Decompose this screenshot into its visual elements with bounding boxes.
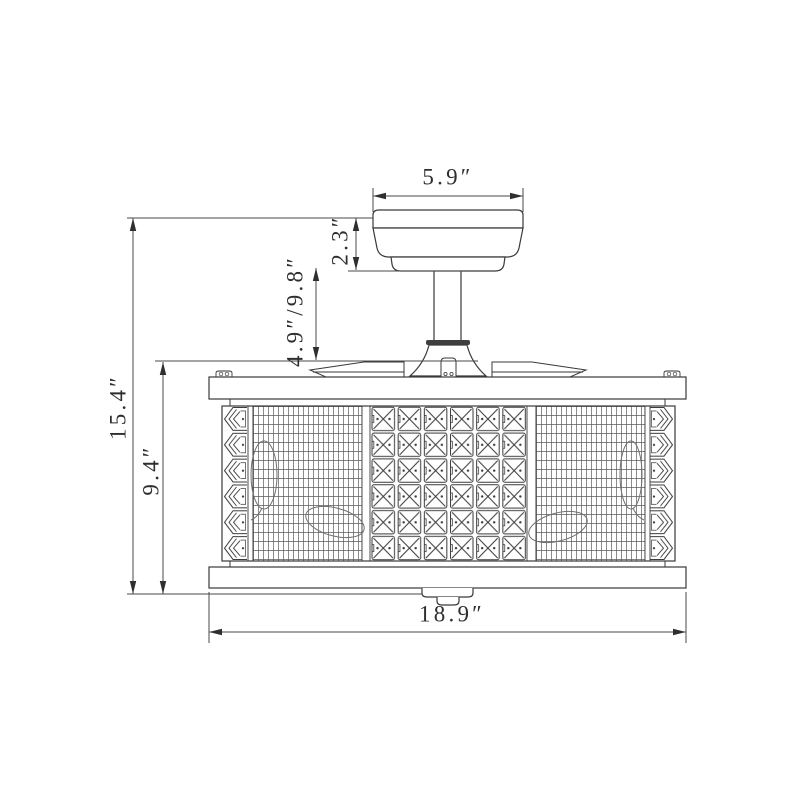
fan-dimension-diagram: 5.9″ 2.3″ 4.9″/9.8″ 15.4″ 9.4″ 18.9″ <box>0 0 800 800</box>
bottom-finial-step1 <box>422 588 473 597</box>
frame-strip <box>248 406 253 561</box>
mesh-panel-right <box>536 406 645 561</box>
dim-label-downrod-length: 4.9″/9.8″ <box>284 255 307 367</box>
edge-crystals-right <box>649 406 675 561</box>
downrod <box>426 271 470 345</box>
dim-label-canopy-width: 5.9″ <box>422 166 473 189</box>
dim-label-shade-width: 18.9″ <box>419 603 485 626</box>
crystal-panel-front <box>370 406 527 561</box>
frame-strip <box>362 406 370 561</box>
crystal-drum-shade <box>222 406 675 561</box>
shade-bottom-band <box>209 561 686 605</box>
dim-label-shade-height: 9.4″ <box>140 444 163 495</box>
frame-strip <box>527 406 536 561</box>
dim-label-overall-height: 15.4″ <box>107 374 130 440</box>
ceiling-canopy <box>373 210 523 271</box>
downrod-coupling <box>426 340 470 345</box>
dim-label-canopy-height: 2.3″ <box>329 214 352 265</box>
edge-crystals-left <box>222 406 248 561</box>
